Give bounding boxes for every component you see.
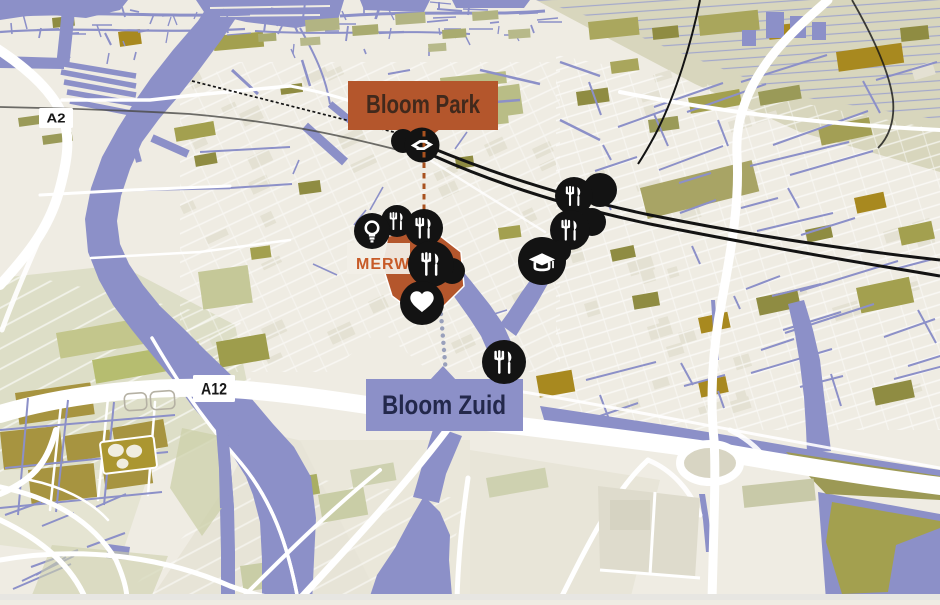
svg-text:A2: A2 bbox=[47, 111, 66, 126]
svg-text:Bloom Zuid: Bloom Zuid bbox=[382, 390, 506, 420]
svg-text:A12: A12 bbox=[201, 380, 227, 399]
svg-text:Bloom Park: Bloom Park bbox=[366, 89, 480, 119]
